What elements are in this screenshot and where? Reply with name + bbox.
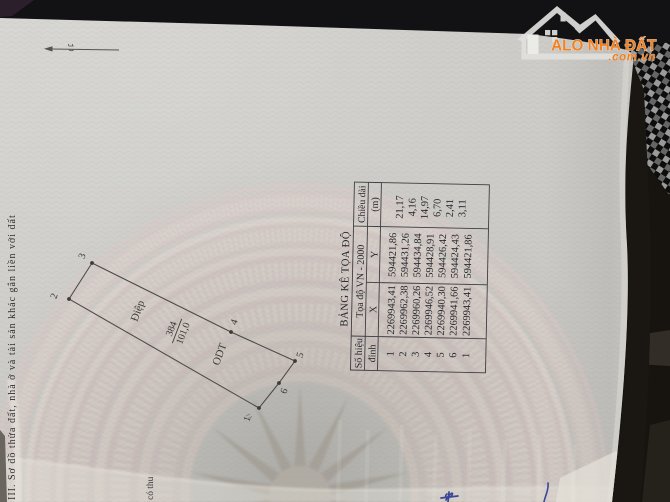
svg-text:1: 1	[386, 351, 397, 356]
svg-text:594424,43: 594424,43	[450, 234, 462, 278]
svg-text:594421,86: 594421,86	[387, 233, 399, 277]
svg-text:Y: Y	[369, 251, 380, 258]
svg-text:14,97: 14,97	[420, 196, 431, 220]
svg-text:2269943,41: 2269943,41	[462, 287, 474, 337]
svg-text:594431,26: 594431,26	[400, 233, 412, 277]
svg-text:2,41: 2,41	[445, 199, 456, 217]
svg-text:2269943,41: 2269943,41	[386, 285, 398, 335]
svg-text:1: 1	[461, 353, 472, 358]
svg-text:3,11: 3,11	[457, 199, 468, 217]
svg-text:594434,84: 594434,84	[412, 232, 424, 277]
svg-text:(m): (m)	[370, 197, 381, 212]
svg-text:3: 3	[411, 352, 422, 357]
svg-text:ất có thu: ất có thu	[145, 476, 156, 502]
svg-text:Số hiệu: Số hiệu	[354, 338, 366, 369]
svg-text:Chiều dài: Chiều dài	[357, 185, 369, 223]
svg-text:2269962,38: 2269962,38	[399, 285, 411, 335]
svg-text:6,70: 6,70	[432, 199, 443, 217]
svg-text:BẢNG KÊ TỌA ĐỘ: BẢNG KÊ TỌA ĐỘ	[338, 231, 352, 327]
svg-text:2269941,66: 2269941,66	[449, 286, 461, 336]
svg-text:594421,86: 594421,86	[463, 234, 475, 278]
svg-text:2: 2	[398, 351, 409, 356]
svg-text:21,17: 21,17	[395, 195, 406, 219]
svg-text:đỉnh: đỉnh	[367, 344, 378, 362]
svg-text:594428,91: 594428,91	[425, 233, 437, 277]
svg-text:III. Sơ đồ thửa đất, nhà ở và: III. Sơ đồ thửa đất, nhà ở và tài sản kh…	[7, 214, 18, 500]
svg-text:X: X	[368, 305, 379, 313]
svg-text:5: 5	[436, 352, 447, 357]
svg-text:.com.vn: .com.vn	[608, 52, 656, 64]
svg-text:4,16: 4,16	[407, 198, 418, 216]
svg-text:2269960,26: 2269960,26	[411, 286, 423, 336]
svg-text:2269940,30: 2269940,30	[436, 286, 448, 336]
svg-text:594426,42: 594426,42	[437, 234, 449, 278]
svg-text:Tọa độ VN - 2000: Tọa độ VN - 2000	[355, 245, 368, 318]
svg-text:2269946,52: 2269946,52	[424, 286, 436, 336]
svg-text:6: 6	[448, 352, 459, 357]
